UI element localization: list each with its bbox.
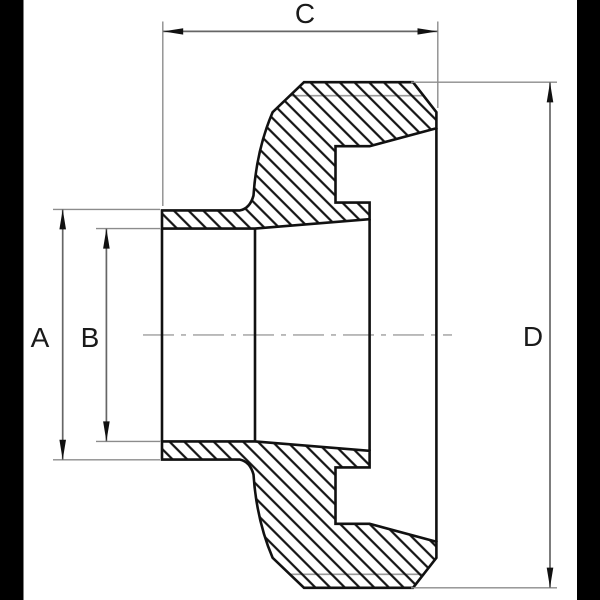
right-letterbox-bar xyxy=(577,0,600,600)
dimension-b-label: B xyxy=(81,322,100,353)
left-letterbox-bar xyxy=(0,0,24,600)
dimension-a-label: A xyxy=(31,322,50,353)
engineering-drawing-canvas: A B C D xyxy=(0,0,600,600)
dimension-d-label: D xyxy=(523,321,543,352)
dimension-c-label: C xyxy=(295,0,315,29)
